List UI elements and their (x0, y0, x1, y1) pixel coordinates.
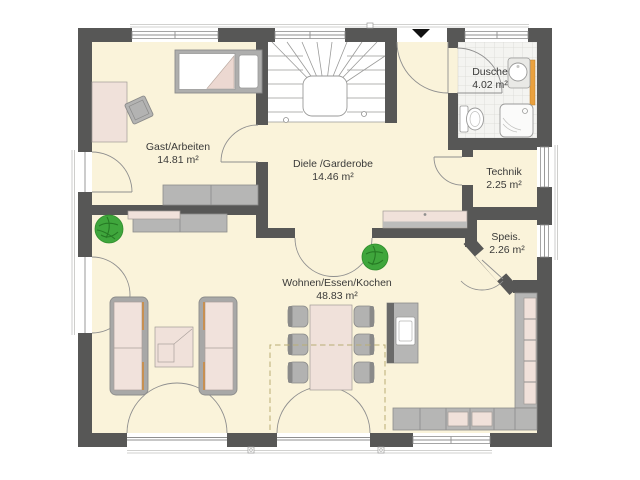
room-label-wohnen: Wohnen/Essen/Kochen (282, 277, 392, 289)
radiator (530, 60, 535, 105)
lowboard-living (128, 211, 227, 232)
kitchen-counter-south (393, 408, 537, 430)
room-area-wohnen: 48.83 m² (316, 290, 358, 302)
stair-newel (362, 112, 367, 117)
coffee-table (155, 327, 193, 367)
dining-chair (354, 362, 374, 383)
window-kitchen-south (413, 437, 490, 444)
sink (508, 58, 530, 88)
room-area-technik: 2.25 m² (486, 179, 522, 191)
window-speis-east (541, 225, 549, 257)
stair-landing (303, 76, 347, 116)
room-area-dusche: 4.02 m² (472, 79, 508, 91)
room-label-speis: Speis. (491, 231, 520, 243)
dining-table (310, 305, 352, 390)
desk (92, 82, 127, 142)
sofa-left (110, 297, 148, 395)
dining-chair (288, 306, 308, 327)
stair-newel (284, 118, 289, 123)
room-area-diele: 14.46 m² (312, 171, 354, 183)
window-technik-east (541, 147, 549, 187)
room-area-speis: 2.26 m² (489, 244, 525, 256)
shower (500, 104, 533, 137)
dining-chair (354, 306, 374, 327)
room-label-technik: Technik (486, 166, 522, 178)
plant (362, 244, 388, 270)
room-label-diele: Diele /Garderobe (293, 158, 373, 170)
window-stair-north (275, 32, 345, 39)
room-label-dusche: Dusche (472, 66, 508, 78)
toilet (460, 106, 484, 132)
bed (175, 50, 262, 93)
stove (396, 317, 415, 345)
kitchen-counter-east (515, 293, 537, 408)
window-gast-north (132, 32, 218, 39)
pillow (239, 55, 258, 88)
plant (95, 215, 123, 243)
room-label-gast: Gast/Arbeiten (146, 141, 210, 153)
sofa-right (199, 297, 237, 395)
floor-plan: Gast/Arbeiten 14.81 m² Diele /Garderobe … (0, 0, 640, 480)
dining-chair (288, 362, 308, 383)
window-dusche-north (465, 32, 528, 39)
room-area-gast: 14.81 m² (157, 154, 199, 166)
sideboard-gast (163, 185, 258, 205)
wardrobe-diele (383, 211, 467, 228)
kitchen-island (387, 303, 418, 363)
